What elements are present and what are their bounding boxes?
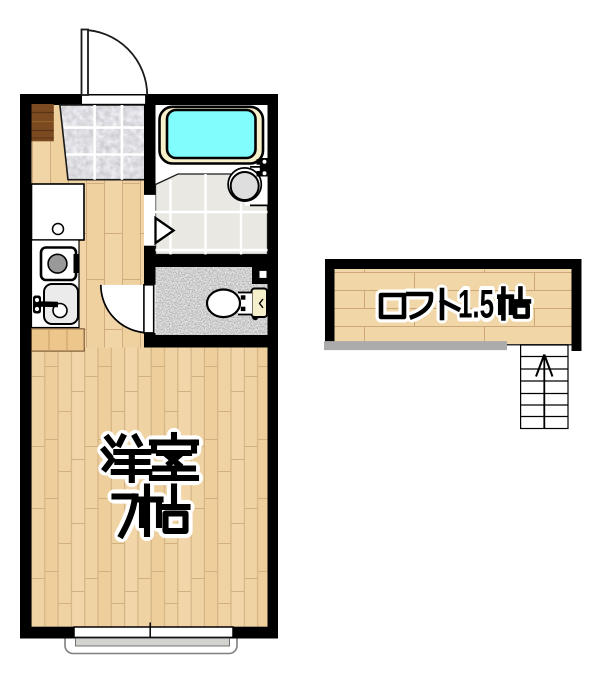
svg-text:1.5: 1.5 [458, 283, 494, 327]
